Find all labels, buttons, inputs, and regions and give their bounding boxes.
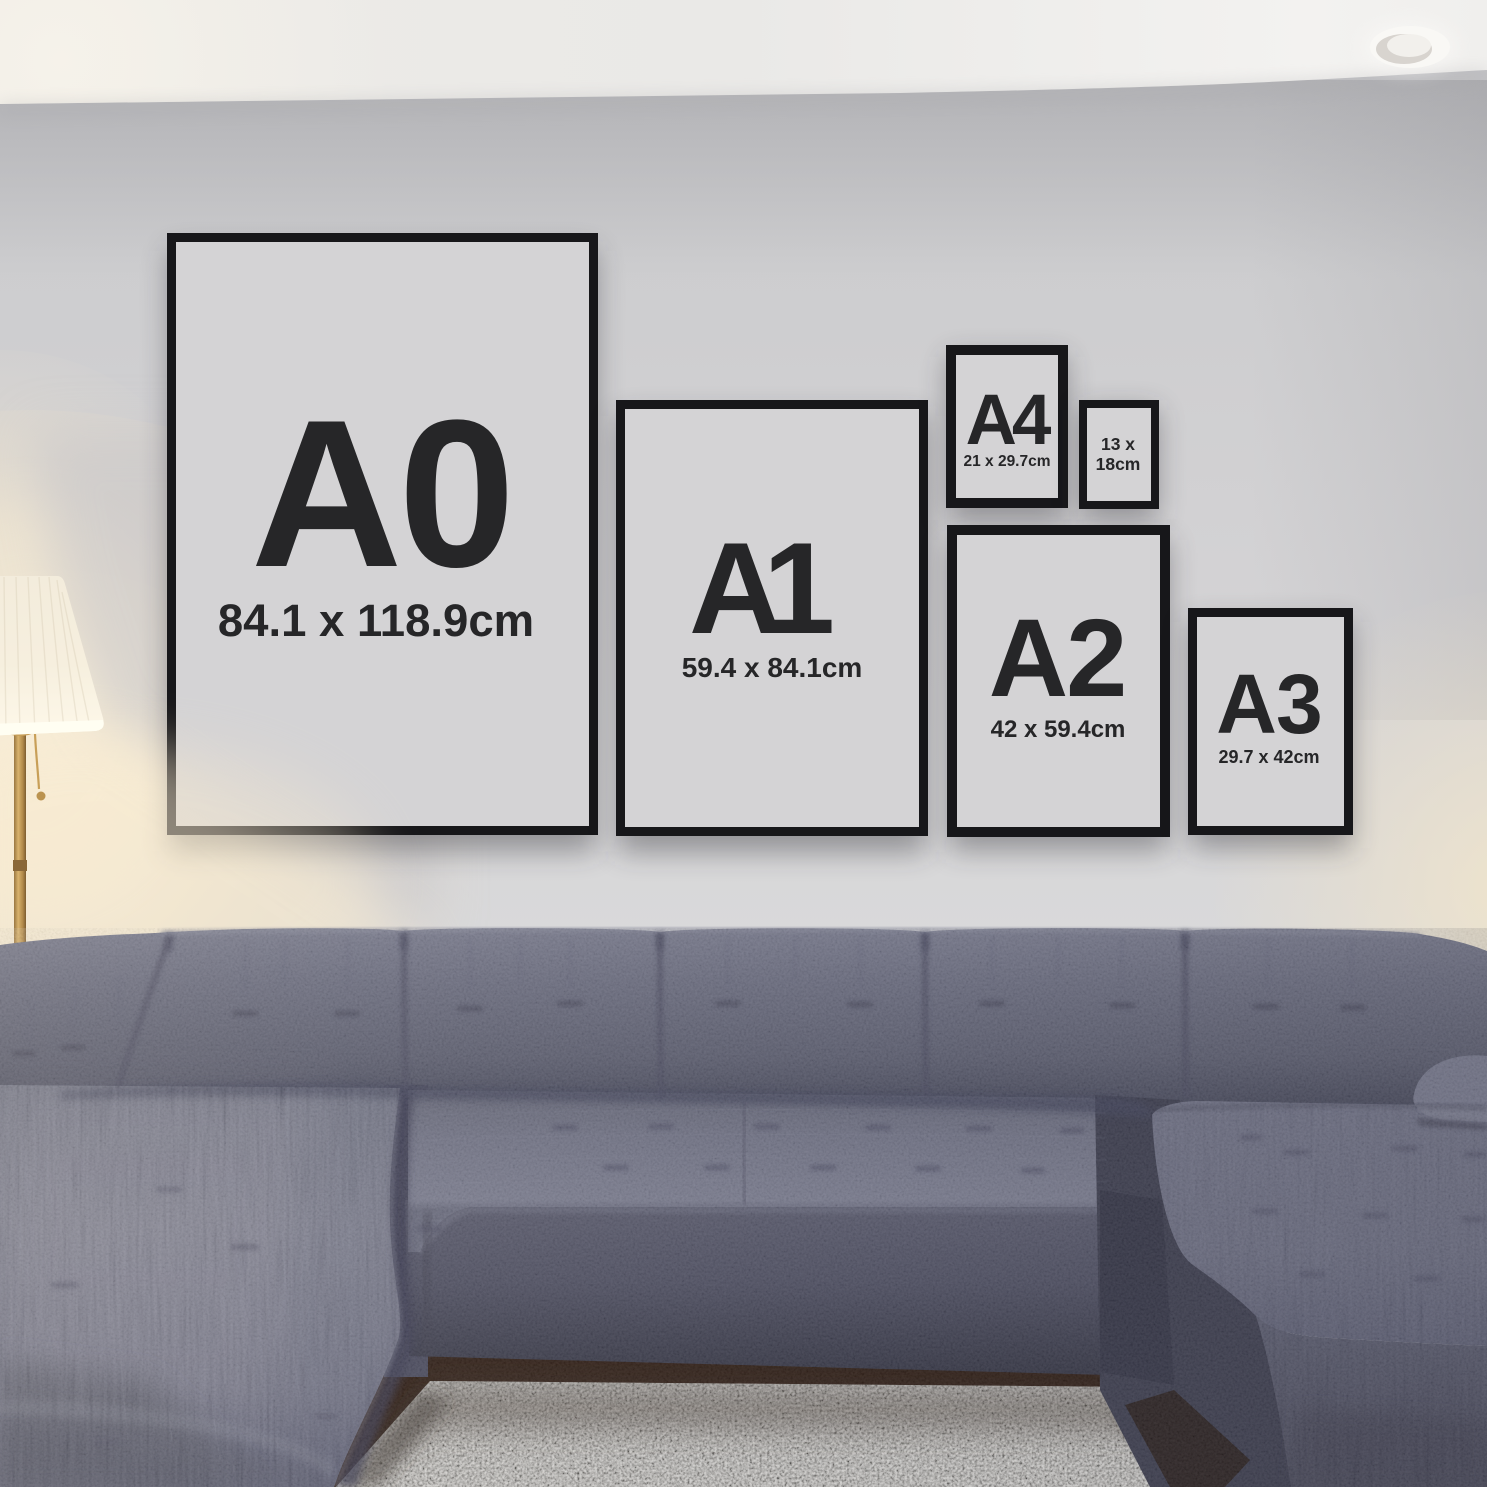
svg-text:84.1 x 118.9cm: 84.1 x 118.9cm [218, 595, 534, 646]
svg-text:42 x 59.4cm: 42 x 59.4cm [991, 716, 1126, 743]
svg-text:59.4 x 84.1cm: 59.4 x 84.1cm [682, 652, 863, 683]
svg-text:A0: A0 [251, 376, 511, 611]
svg-text:A1: A1 [689, 515, 832, 661]
svg-text:21 x 29.7cm: 21 x 29.7cm [963, 453, 1050, 470]
svg-text:18cm: 18cm [1096, 454, 1141, 474]
svg-text:A4: A4 [966, 381, 1052, 460]
svg-text:A3: A3 [1216, 657, 1321, 751]
svg-text:13 x: 13 x [1101, 434, 1135, 454]
svg-text:29.7 x 42cm: 29.7 x 42cm [1218, 747, 1319, 767]
svg-text:A2: A2 [989, 597, 1126, 720]
